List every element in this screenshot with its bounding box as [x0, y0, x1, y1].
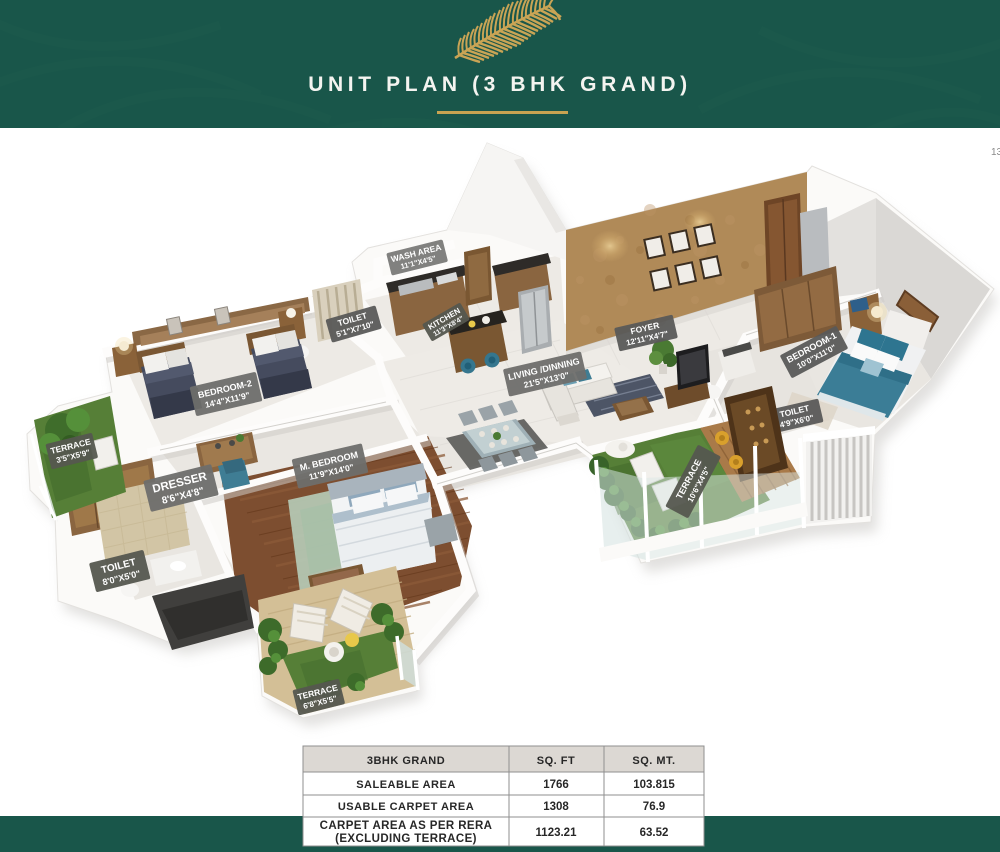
svg-text:76.9: 76.9: [643, 801, 665, 813]
svg-text:13: 13: [991, 147, 1000, 158]
svg-text:UNIT PLAN (3 BHK GRAND): UNIT PLAN (3 BHK GRAND): [308, 73, 691, 96]
svg-text:1123.21: 1123.21: [536, 827, 578, 839]
svg-text:SQ. MT.: SQ. MT.: [632, 755, 675, 767]
svg-text:USABLE CARPET AREA: USABLE CARPET AREA: [338, 801, 474, 813]
svg-text:SALEABLE AREA: SALEABLE AREA: [356, 779, 456, 791]
svg-text:1766: 1766: [543, 779, 569, 791]
svg-text:63.52: 63.52: [640, 827, 669, 839]
svg-text:3BHK GRAND: 3BHK GRAND: [367, 755, 445, 767]
svg-text:103.815: 103.815: [633, 779, 675, 791]
svg-text:1308: 1308: [543, 801, 569, 813]
svg-text:SQ. FT: SQ. FT: [537, 755, 575, 767]
svg-text:CARPET AREA AS PER RERA: CARPET AREA AS PER RERA: [320, 820, 493, 832]
svg-text:(EXCLUDING TERRACE): (EXCLUDING TERRACE): [335, 833, 477, 845]
